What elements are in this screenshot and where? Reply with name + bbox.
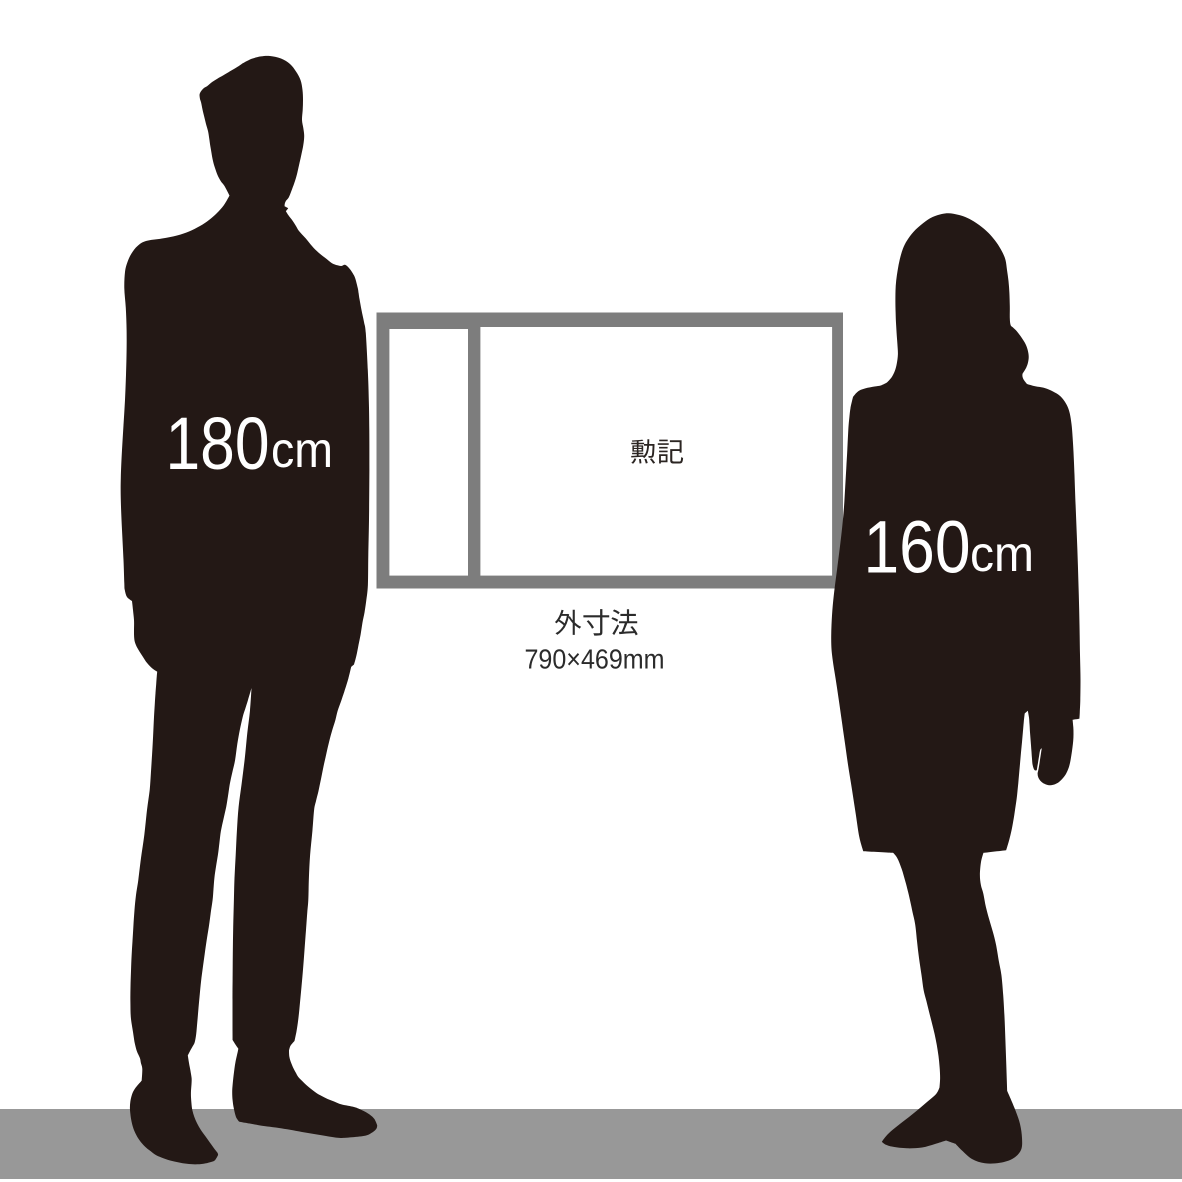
svg-text:cm: cm — [970, 526, 1034, 582]
svg-text:cm: cm — [271, 422, 333, 478]
svg-text:790×469mm: 790×469mm — [525, 644, 665, 675]
svg-text:180: 180 — [166, 402, 270, 485]
svg-text:160: 160 — [864, 506, 971, 589]
